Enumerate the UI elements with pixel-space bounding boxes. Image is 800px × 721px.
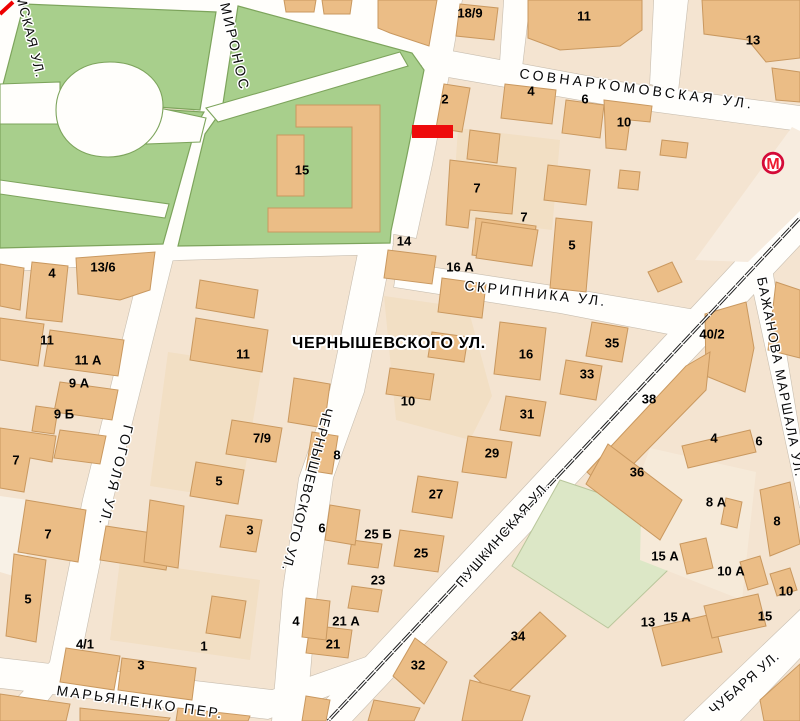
svg-text:10 А: 10 А [717, 564, 745, 579]
svg-text:3: 3 [246, 523, 253, 538]
svg-text:15: 15 [758, 609, 772, 624]
svg-text:11: 11 [236, 347, 250, 362]
svg-text:27: 27 [429, 487, 443, 502]
svg-text:9 А: 9 А [69, 376, 90, 391]
svg-text:16: 16 [519, 347, 533, 362]
svg-text:8 А: 8 А [706, 495, 727, 510]
svg-text:40/2: 40/2 [699, 327, 724, 342]
svg-text:6: 6 [318, 521, 325, 536]
svg-text:36: 36 [630, 465, 644, 480]
svg-text:38: 38 [642, 392, 656, 407]
svg-text:35: 35 [605, 336, 619, 351]
svg-text:25 Б: 25 Б [364, 527, 391, 542]
svg-text:5: 5 [568, 238, 575, 253]
svg-text:10: 10 [617, 115, 631, 130]
svg-text:15 А: 15 А [663, 610, 691, 625]
svg-text:М: М [766, 156, 779, 173]
svg-text:10: 10 [401, 394, 415, 409]
svg-text:11: 11 [577, 9, 591, 24]
svg-text:11: 11 [40, 333, 54, 348]
svg-text:25: 25 [414, 546, 428, 561]
svg-text:33: 33 [580, 367, 594, 382]
svg-text:14: 14 [397, 234, 412, 249]
svg-text:18/9: 18/9 [457, 6, 482, 21]
svg-text:ЧЕРНЫШЕВСКОГО УЛ.: ЧЕРНЫШЕВСКОГО УЛ. [292, 335, 486, 352]
svg-text:15: 15 [295, 163, 309, 178]
svg-text:31: 31 [520, 407, 534, 422]
svg-text:7: 7 [473, 181, 480, 196]
svg-text:29: 29 [485, 446, 499, 461]
svg-text:2: 2 [441, 92, 448, 107]
svg-text:13/6: 13/6 [90, 260, 115, 275]
svg-text:6: 6 [755, 434, 762, 449]
svg-text:15 А: 15 А [651, 549, 679, 564]
svg-text:8: 8 [333, 448, 340, 463]
svg-text:7: 7 [12, 453, 19, 468]
svg-text:5: 5 [24, 592, 31, 607]
svg-text:13: 13 [641, 615, 655, 630]
svg-text:11 А: 11 А [75, 353, 102, 368]
svg-text:1: 1 [200, 639, 207, 654]
svg-text:4: 4 [710, 431, 718, 446]
svg-text:8: 8 [773, 514, 780, 529]
svg-text:4/1: 4/1 [76, 637, 94, 652]
svg-text:34: 34 [511, 629, 526, 644]
svg-text:4: 4 [48, 266, 56, 281]
svg-text:6: 6 [581, 92, 588, 107]
svg-text:7: 7 [520, 210, 527, 225]
svg-text:4: 4 [292, 614, 300, 629]
svg-text:7/9: 7/9 [253, 431, 271, 446]
svg-text:3: 3 [137, 658, 144, 673]
svg-text:10: 10 [779, 584, 793, 599]
svg-text:21 А: 21 А [332, 614, 360, 629]
svg-text:13: 13 [746, 33, 760, 48]
svg-text:32: 32 [411, 658, 425, 673]
svg-text:23: 23 [371, 573, 385, 588]
svg-text:4: 4 [527, 84, 535, 99]
svg-text:9 Б: 9 Б [54, 407, 74, 422]
svg-text:21: 21 [326, 637, 340, 652]
svg-text:7: 7 [44, 527, 51, 542]
svg-text:5: 5 [215, 474, 222, 489]
svg-text:16 А: 16 А [446, 260, 474, 275]
